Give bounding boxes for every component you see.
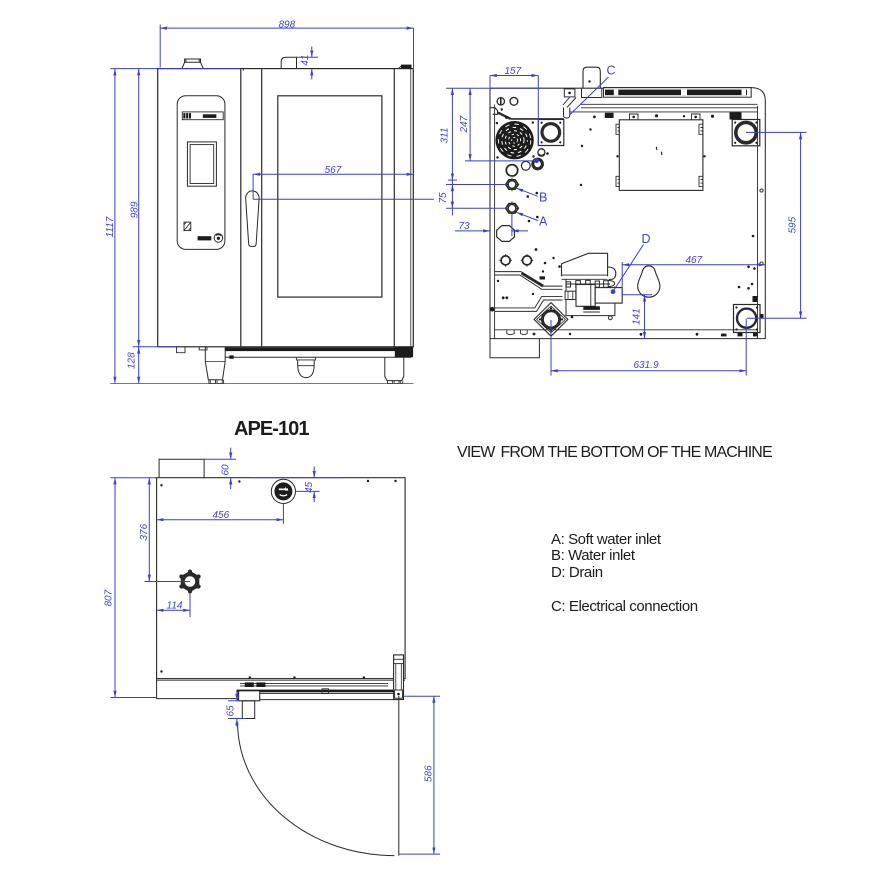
svg-text:456: 456	[213, 510, 230, 521]
svg-text:60: 60	[221, 464, 232, 476]
svg-text:595: 595	[788, 216, 799, 233]
svg-text:247: 247	[459, 115, 470, 133]
svg-text:467: 467	[686, 255, 703, 266]
svg-text:C: Electrical connection: C: Electrical connection	[551, 598, 698, 615]
svg-text:1117: 1117	[105, 216, 116, 237]
svg-text:567: 567	[325, 165, 342, 176]
svg-text:586: 586	[424, 765, 435, 782]
svg-text:128: 128	[127, 352, 138, 369]
svg-text:898: 898	[279, 19, 296, 30]
svg-text:73: 73	[459, 221, 471, 232]
svg-text:631.9: 631.9	[634, 360, 659, 371]
svg-text:VIEW FROM THE BOTTOM OF THE M: VIEW FROM THE BOTTOM OF THE MACHINE	[457, 444, 772, 461]
svg-text:D: Drain: D: Drain	[551, 564, 603, 581]
svg-text:114: 114	[167, 601, 183, 612]
svg-text:A: Soft water inlet: A: Soft water inlet	[551, 531, 662, 548]
svg-text:D: D	[642, 232, 651, 246]
svg-text:376: 376	[139, 523, 150, 540]
svg-text:B: Water inlet: B: Water inlet	[551, 547, 636, 564]
svg-text:989: 989	[129, 201, 140, 218]
svg-text:A: A	[539, 215, 548, 229]
svg-text:807: 807	[104, 589, 115, 606]
svg-text:B: B	[539, 191, 547, 205]
svg-text:APE-101: APE-101	[234, 418, 309, 440]
svg-text:157: 157	[505, 66, 522, 77]
svg-text:41: 41	[300, 55, 311, 66]
svg-text:141: 141	[632, 308, 643, 325]
svg-text:311: 311	[440, 128, 451, 144]
svg-text:45: 45	[304, 481, 315, 493]
svg-text:C: C	[607, 64, 616, 78]
svg-text:65: 65	[225, 705, 236, 717]
svg-text:75: 75	[438, 192, 449, 204]
